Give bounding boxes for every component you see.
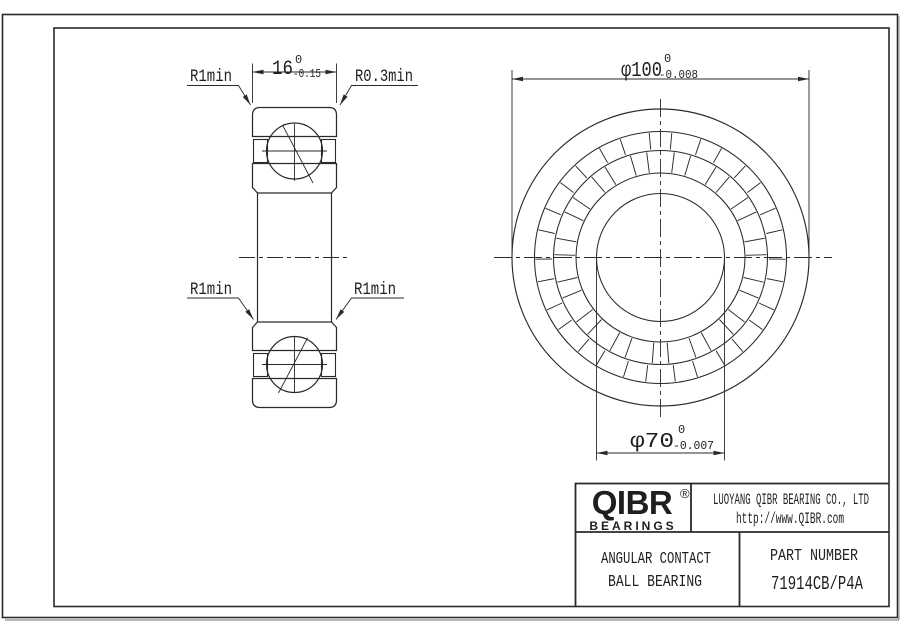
title-block: QIBR ® BEARINGS LUOYANG QIBR BEARING CO.… — [576, 484, 890, 607]
cage-pocket-bottom-right — [322, 354, 336, 377]
dim-bore-dia-tol-upper: 0 — [678, 423, 685, 437]
leader-mid-right — [336, 298, 404, 320]
part-number-value: 71914CB/P4A — [771, 573, 863, 595]
front-view: φ100 0 -0.008 φ70 0 -0.007 — [494, 52, 832, 461]
engineering-drawing: 16 0 -0.15 R1min R0.3min R1min R1min — [0, 0, 900, 636]
engineering-drawing-page: 16 0 -0.15 R1min R0.3min R1min R1min — [0, 0, 900, 636]
leader-mid-left — [187, 298, 254, 320]
dim-outer-dia-value: φ100 — [621, 60, 662, 83]
page-borders — [3, 15, 900, 621]
ball-bottom-centerlines — [262, 337, 327, 393]
border-shadow — [5, 16, 899, 620]
leader-top-right — [340, 86, 418, 106]
dim-outer-dia-tol-lower: -0.008 — [659, 68, 698, 82]
dim-bore-dia-value: φ70 — [630, 431, 674, 454]
cage-pocket-bottom-left — [254, 354, 268, 377]
company-name: LUOYANG QIBR BEARING CO., LTD — [713, 491, 869, 509]
logo-text: QIBR — [592, 484, 673, 521]
leader-top-left — [187, 86, 251, 106]
dim-width-tol-upper: 0 — [295, 53, 302, 67]
product-type-line2: BALL BEARING — [608, 573, 702, 592]
dimension-width: 16 0 -0.15 — [253, 53, 337, 103]
leader-mid-left-label: R1min — [190, 280, 232, 300]
part-number-label: PART NUMBER — [770, 547, 858, 566]
registered-trademark-icon: ® — [680, 486, 690, 501]
leader-top-right-label: R0.3min — [355, 67, 413, 87]
logo-subtitle: BEARINGS — [589, 519, 676, 533]
company-website: http://www.QIBR.com — [736, 510, 844, 528]
product-type-line1: ANGULAR CONTACT — [601, 550, 711, 569]
dim-bore-dia-tol-lower: -0.007 — [673, 439, 714, 453]
dim-width-tol-lower: -0.15 — [293, 67, 321, 81]
dim-outer-dia-tol-upper: 0 — [664, 52, 671, 66]
leader-top-left-label: R1min — [190, 67, 232, 87]
company-logo: QIBR ® BEARINGS — [589, 484, 690, 533]
dim-width-value: 16 — [272, 58, 293, 81]
leader-mid-right-label: R1min — [354, 280, 396, 300]
cross-section-view: 16 0 -0.15 R1min R0.3min R1min R1min — [187, 53, 418, 408]
ball-top-centerlines — [262, 124, 327, 183]
